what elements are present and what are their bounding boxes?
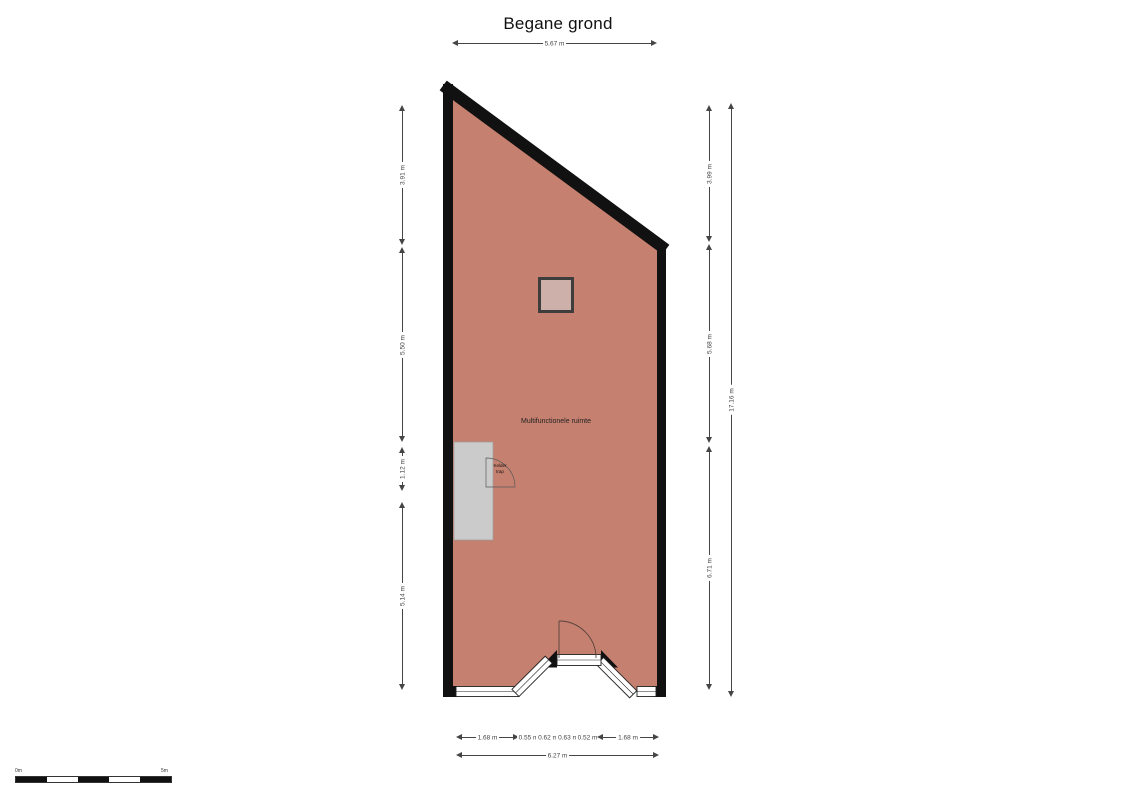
dim-top: 5.67 m: [452, 39, 657, 48]
floorplan-page: Begane grond: [0, 0, 1131, 800]
scale-bar: [15, 776, 172, 783]
dim-bottom-6: 1.68 m: [597, 733, 659, 742]
dimension-label: 5.67 m: [543, 40, 567, 47]
scale-bar-segment: [78, 777, 109, 782]
dim-left-4: 5.14 m: [398, 502, 407, 690]
dimension-label: 3.91 m: [399, 162, 406, 188]
scale-bar-segment: [47, 777, 78, 782]
dim-left-2: 5.50 m: [398, 247, 407, 442]
dim-right-2: 5.68 m: [705, 244, 714, 443]
room-label: Multifunctionele ruimte: [505, 418, 607, 425]
dimension-label: 3.99 m: [706, 161, 713, 187]
dim-left-3: 1.12 m: [398, 447, 407, 491]
window-bottom-right: [637, 687, 656, 697]
dimension-label: 5.50 m: [399, 332, 406, 358]
dim-right-3: 6.71 m: [705, 446, 714, 690]
dim-right-total: 17.16 m: [727, 103, 736, 697]
stairs-label-line2: trap: [486, 469, 514, 475]
dim-bottom-5: 0.52 m: [578, 733, 597, 742]
dim-left-1: 3.91 m: [398, 105, 407, 245]
dim-bottom-total: 6.27 m: [456, 751, 659, 760]
scale-bar-segment: [140, 777, 171, 782]
dim-bottom-1: 1.68 m: [456, 733, 519, 742]
scale-bar-segment: [109, 777, 140, 782]
dimension-label: 1.12 m: [399, 456, 406, 482]
dimension-label: 5.68 m: [706, 331, 713, 357]
scale-bar-start-label: 0m: [15, 768, 22, 774]
scale-bar-segment: [16, 777, 47, 782]
basement-stairs: [454, 442, 493, 540]
dimension-label: 1.68 m: [616, 734, 640, 741]
dimension-label: 0.52 m: [576, 734, 600, 741]
scale-bar-end-label: 5m: [161, 768, 168, 774]
window-bottom-left: [456, 687, 519, 697]
dim-right-1: 3.99 m: [705, 105, 714, 242]
floor-area: [449, 90, 661, 690]
dimension-label: 6.27 m: [546, 752, 570, 759]
dimension-label: 6.71 m: [706, 555, 713, 581]
dimension-label: 1.68 m: [476, 734, 500, 741]
dim-bottom-3: 0.62 m: [538, 733, 558, 742]
skylight-square: [540, 279, 573, 312]
floor-plan-drawing: [0, 0, 1131, 800]
dimension-label: 5.14 m: [399, 583, 406, 609]
dimension-label: 17.16 m: [728, 385, 735, 415]
door-sill-window: [557, 655, 601, 666]
stairs-label: Kelder trap: [486, 463, 514, 474]
